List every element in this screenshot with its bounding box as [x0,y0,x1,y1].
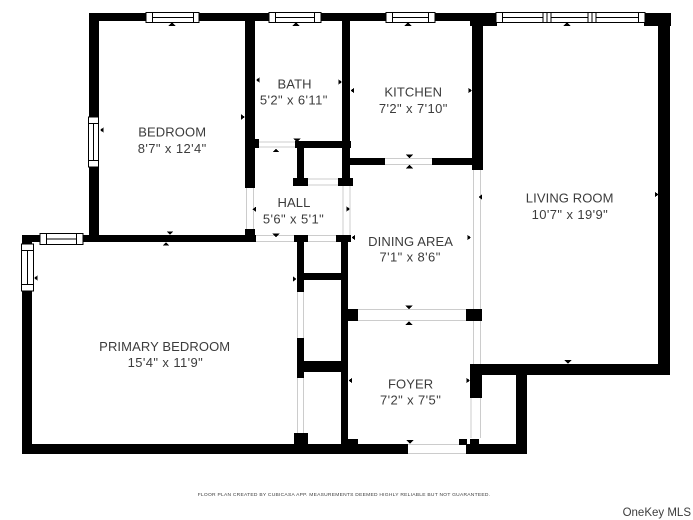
svg-text:BATH: BATH [278,76,312,91]
svg-text:BEDROOM: BEDROOM [138,125,206,140]
svg-text:7'2" x 7'10": 7'2" x 7'10" [379,101,448,116]
svg-text:OneKey MLS: OneKey MLS [623,507,692,519]
svg-text:DINING AREA: DINING AREA [368,234,453,249]
svg-text:LIVING ROOM: LIVING ROOM [526,191,614,206]
svg-text:PRIMARY BEDROOM: PRIMARY BEDROOM [99,339,230,354]
svg-text:KITCHEN: KITCHEN [384,85,442,100]
svg-text:5'2" x 6'11": 5'2" x 6'11" [260,93,328,108]
svg-text:7'1" x 8'6": 7'1" x 8'6" [379,250,440,265]
svg-text:8'7" x 12'4": 8'7" x 12'4" [138,141,207,156]
svg-text:7'2" x 7'5": 7'2" x 7'5" [380,393,441,408]
svg-text:FLOOR PLAN CREATED BY CUBICASA: FLOOR PLAN CREATED BY CUBICASA APP. MEAS… [198,492,491,498]
svg-text:15'4" x 11'9": 15'4" x 11'9" [128,355,204,370]
svg-text:5'6" x 5'1": 5'6" x 5'1" [263,211,324,226]
svg-text:FOYER: FOYER [388,377,433,392]
svg-text:HALL: HALL [278,195,311,210]
svg-text:10'7" x 19'9": 10'7" x 19'9" [532,207,609,222]
